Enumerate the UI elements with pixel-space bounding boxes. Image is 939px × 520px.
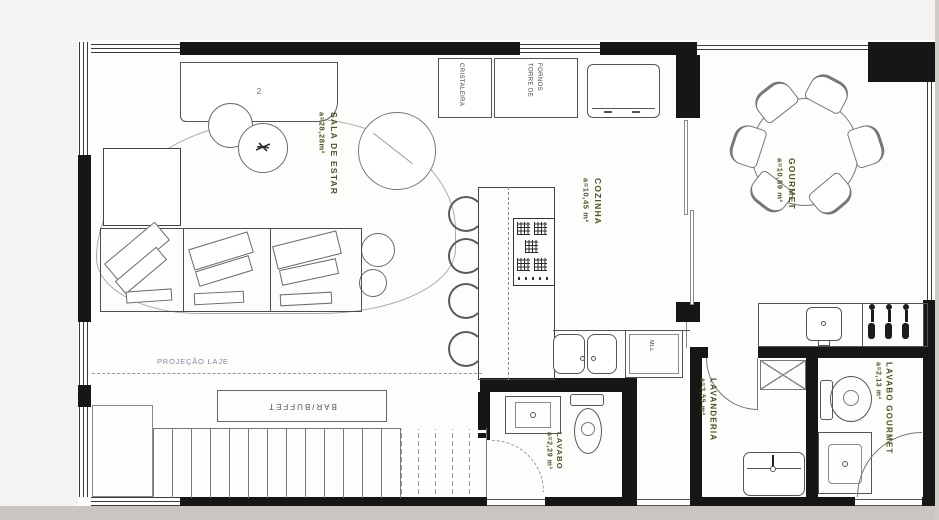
window <box>91 43 180 53</box>
faucet-dot <box>580 356 585 361</box>
wall-segment <box>600 42 697 55</box>
toilet-bowl-inner <box>843 390 859 406</box>
kitchen-sink-basin <box>587 334 617 374</box>
room-label-lavanderia: LAVANDERIA a=3,55 m² <box>696 378 719 496</box>
stair-landing <box>92 405 153 497</box>
bar-stool <box>448 283 484 319</box>
room-label-cozinha: COZINHA a=10,45 m² <box>580 178 604 308</box>
faucet-dot <box>821 321 826 326</box>
door-threshold <box>637 499 690 506</box>
wall-segment <box>480 378 637 392</box>
wall-segment <box>78 155 91 322</box>
burner-icon <box>525 240 538 253</box>
bar-buffet-label: BAR/BUFFET <box>218 391 386 421</box>
room-label-lavabo: LAVABO a=2,29 m² <box>543 432 565 494</box>
room-name: LAVABO <box>554 432 565 494</box>
wall-segment <box>690 347 708 358</box>
room-area: a=2,13 m² <box>872 362 883 482</box>
dishwasher-inner <box>629 334 679 374</box>
counter-overhang-line <box>508 187 509 380</box>
faucet-dot <box>530 412 536 418</box>
window <box>79 322 89 385</box>
window <box>79 407 89 497</box>
skewer-icon <box>888 310 891 322</box>
faucet-handle <box>818 340 830 346</box>
room-name: COZINHA <box>591 178 604 308</box>
cristaleira-label: CRISTALEIRA <box>456 63 465 115</box>
skewer-icon <box>871 310 874 322</box>
rack-count-label: 2 <box>257 87 261 96</box>
bar-stool <box>448 238 484 274</box>
cabinet-cristaleira <box>438 58 492 118</box>
dishwasher-label: MLL <box>648 340 654 352</box>
window <box>697 44 868 50</box>
faucet-dot <box>770 466 776 472</box>
skewer-icon <box>868 323 875 339</box>
window <box>79 42 89 155</box>
slab-projection-line <box>92 373 482 374</box>
stairs <box>153 428 401 498</box>
room-area: a=3,55 m² <box>696 378 707 496</box>
burner-icon <box>534 258 547 271</box>
cabinet-text: CRISTALEIRA <box>456 63 465 115</box>
dishwasher-text: MLL <box>648 340 654 352</box>
backdrop-strip <box>935 0 939 520</box>
bar-buffet-box: BAR/BUFFET <box>217 390 387 422</box>
torre-fornos-label: TORRE DE FORNOS <box>524 63 543 115</box>
skewer-icon <box>902 323 909 339</box>
room-label-lavabo-gourmet: LAVABO GOURMET a=2,13 m² <box>872 362 895 482</box>
wall-segment <box>676 55 700 118</box>
wall-segment <box>806 358 818 497</box>
cabinet-text: FORNOS <box>534 63 544 115</box>
room-area: a=10,89 m² <box>774 158 785 268</box>
glass-panel <box>684 120 688 215</box>
room-area: a=10,45 m² <box>580 178 591 308</box>
faucet-dot <box>842 461 848 467</box>
wall-line <box>686 322 688 348</box>
door-leaf <box>757 358 758 410</box>
door-threshold <box>487 499 545 506</box>
window <box>927 82 934 300</box>
stairs-dashed-projection <box>401 429 487 497</box>
bar-stool <box>448 196 484 232</box>
skewer-icon <box>885 323 892 339</box>
room-label-sala: SALA DE ESTAR a=28,28m² <box>316 112 340 272</box>
window <box>520 43 600 53</box>
backdrop-strip <box>0 506 939 520</box>
room-name: LAVANDERIA <box>707 378 719 496</box>
room-name: LAVABO GOURMET <box>883 362 895 482</box>
sofa-divider <box>270 228 271 312</box>
faucet-dot <box>591 356 596 361</box>
fridge-handle <box>604 111 612 113</box>
bar-stool <box>448 331 484 367</box>
tv-rack: 2 <box>180 62 338 122</box>
sofa-divider <box>183 228 184 312</box>
cooktop-knobs <box>518 277 552 280</box>
wall-segment <box>818 347 935 358</box>
burner-icon <box>517 222 530 235</box>
coffee-table <box>103 148 181 226</box>
wall-segment <box>622 385 637 497</box>
side-table <box>359 269 387 297</box>
burner-icon <box>517 258 530 271</box>
wall-segment <box>180 42 520 55</box>
room-name: GOURMET <box>785 158 798 268</box>
room-label-gourmet: GOURMET a=10,89 m² <box>774 158 798 268</box>
room-area: a=28,28m² <box>316 112 327 272</box>
side-table <box>361 233 395 267</box>
fridge-handle <box>632 111 640 113</box>
toilet-tank <box>570 394 604 406</box>
wall-segment <box>676 302 700 322</box>
fridge-door-line <box>592 108 655 109</box>
refrigerator <box>587 64 660 118</box>
toilet-bowl-inner <box>581 422 595 436</box>
room-area: a=2,29 m² <box>543 432 554 494</box>
floor-plan-canvas: 2 SALA DE ESTAR a=28,28m² CRISTALEIRA TO… <box>0 0 939 520</box>
laundry-tank <box>743 452 805 496</box>
projection-text: PROJEÇÃO LAJE <box>157 357 229 366</box>
slab-projection-label: PROJEÇÃO LAJE <box>153 357 233 366</box>
kitchen-sink-basin <box>553 334 585 374</box>
room-name: SALA DE ESTAR <box>327 112 340 272</box>
door-threshold <box>855 499 922 506</box>
plant-icon <box>252 136 274 158</box>
stair-edge-line <box>486 428 487 497</box>
shelf-diagonal <box>760 360 806 390</box>
burner-icon <box>534 222 547 235</box>
skewer-icon <box>905 310 908 322</box>
wall-segment <box>868 42 935 82</box>
glass-panel <box>690 210 694 305</box>
wall-segment <box>78 385 91 407</box>
wall-segment <box>758 347 818 358</box>
cabinet-text: TORRE DE <box>524 63 534 115</box>
